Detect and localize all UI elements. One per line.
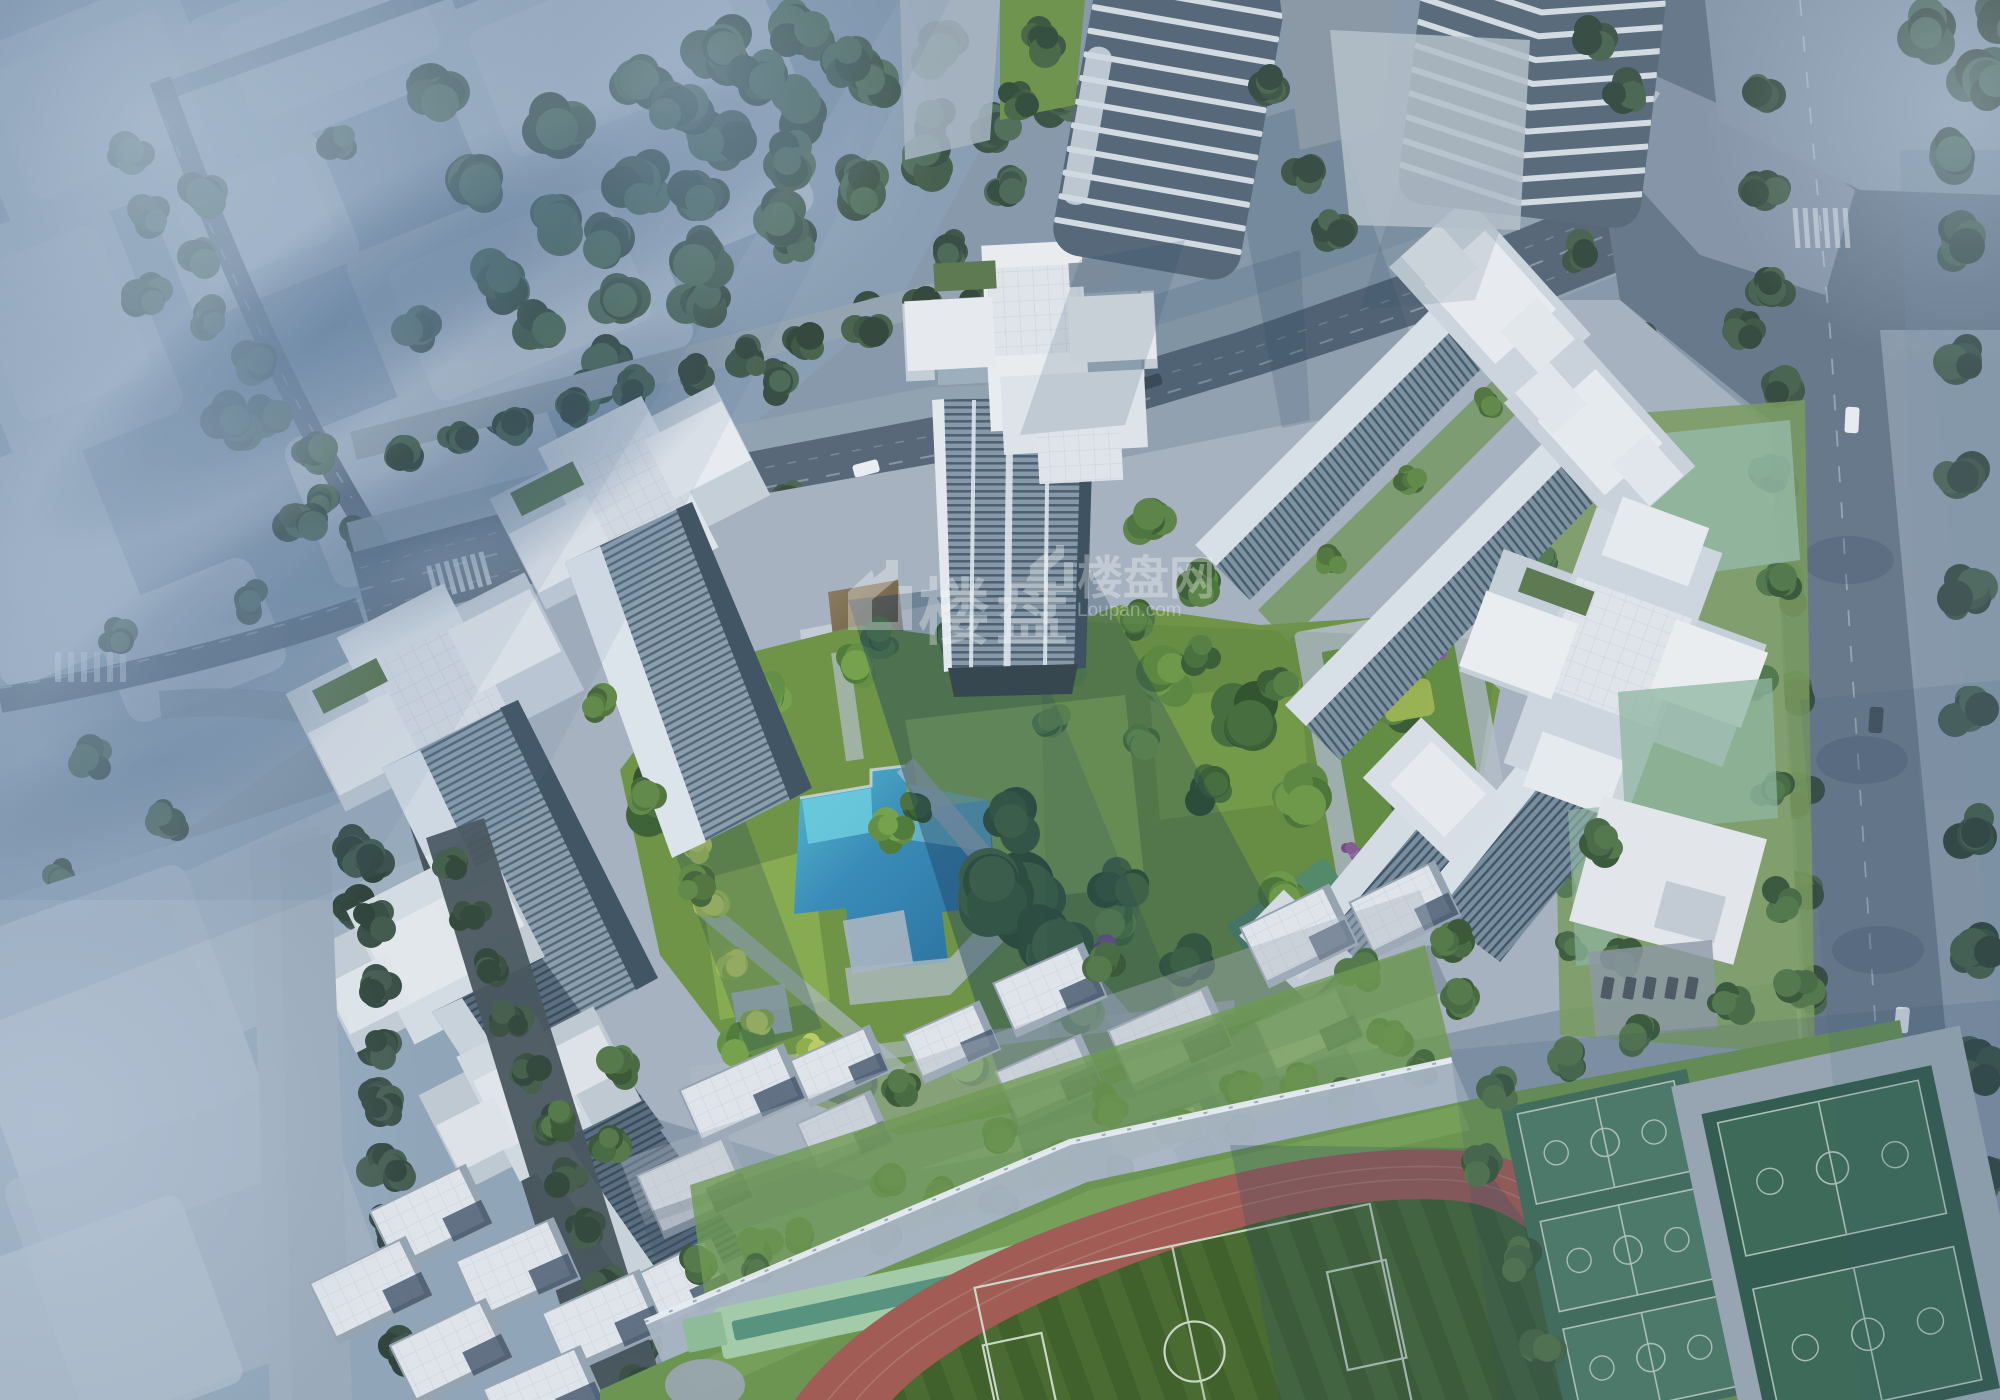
svg-text:楼盘网: 楼盘网 [1077,552,1215,604]
svg-text:Loupan.com: Loupan.com [1077,600,1182,621]
